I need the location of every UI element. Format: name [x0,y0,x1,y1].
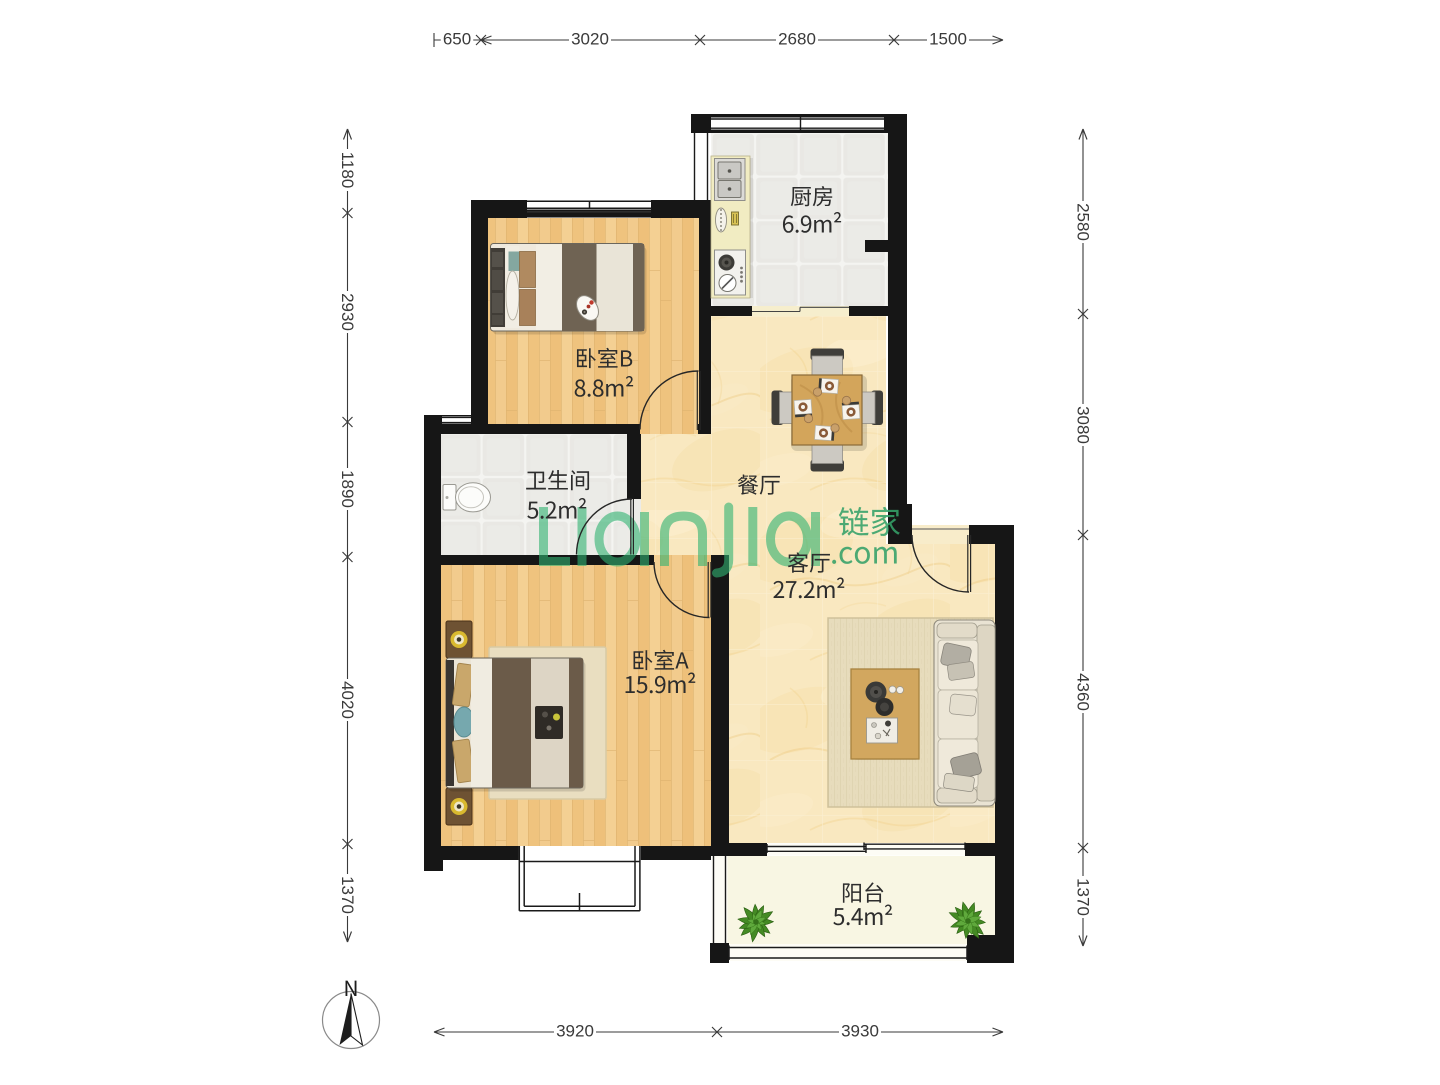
svg-text:2680: 2680 [778,30,816,49]
svg-text:650: 650 [443,30,471,49]
svg-text:3920: 3920 [556,1022,594,1041]
svg-text:1370: 1370 [1074,878,1093,916]
svg-text:3080: 3080 [1074,406,1093,444]
svg-text:4020: 4020 [338,681,357,719]
svg-text:3930: 3930 [841,1022,879,1041]
svg-text:3020: 3020 [571,30,609,49]
svg-text:2930: 2930 [338,293,357,331]
svg-text:4360: 4360 [1074,673,1093,711]
svg-text:1180: 1180 [338,152,357,189]
svg-text:2580: 2580 [1074,203,1093,241]
svg-text:1890: 1890 [338,470,357,508]
svg-text:1370: 1370 [338,876,357,914]
svg-text:1500: 1500 [929,30,967,49]
